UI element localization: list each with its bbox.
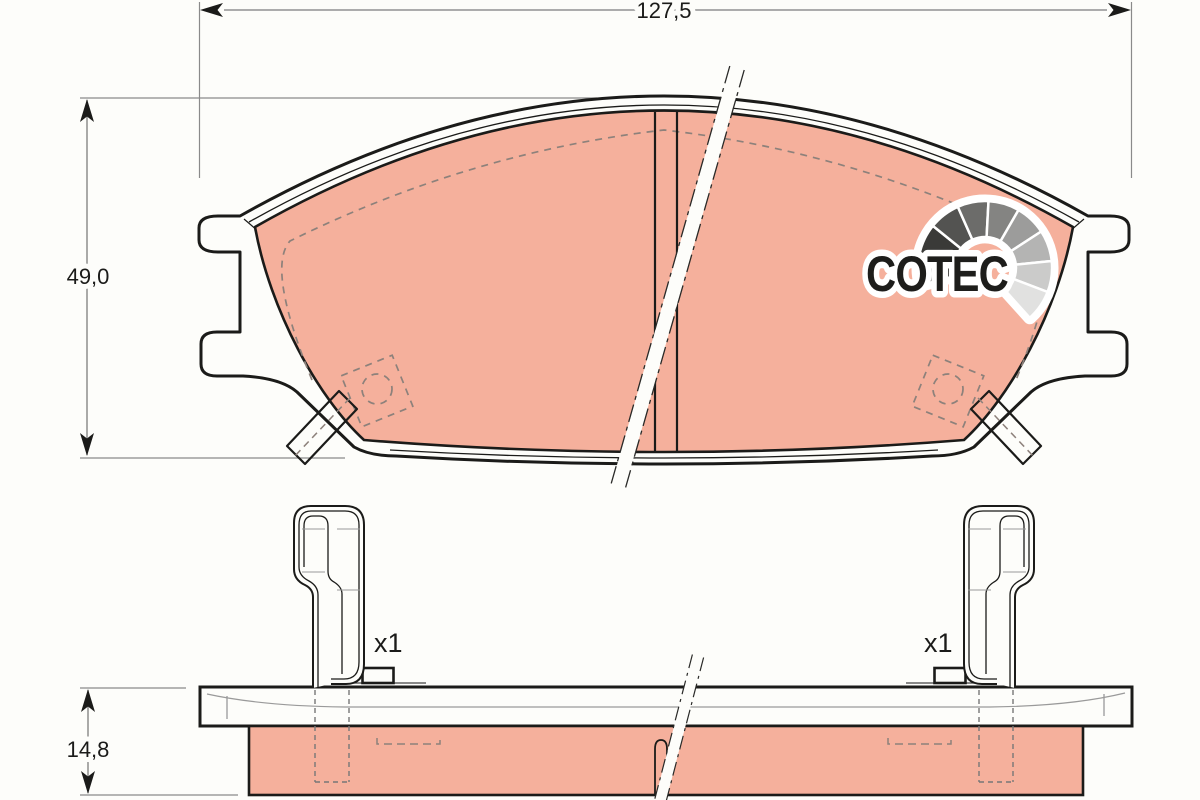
logo-wordmark: COTEC xyxy=(866,246,1008,302)
arrowhead xyxy=(200,3,223,17)
left-spring-clip xyxy=(294,506,364,688)
tab-centerline-dashed xyxy=(978,398,1035,458)
left-shim-tab xyxy=(363,668,394,683)
right-shim-tab xyxy=(935,668,966,683)
right-spring-clip xyxy=(964,506,1034,688)
right-clip-qty-label: x1 xyxy=(924,628,953,658)
dim-thickness-label: 14,8 xyxy=(67,737,110,762)
arrowhead xyxy=(1108,3,1131,17)
brake-pad-technical-drawing: 127,5 49,0 14,8 xyxy=(0,0,1200,800)
left-clip-qty-label: x1 xyxy=(374,628,403,658)
tab-centerline-dashed xyxy=(293,398,350,458)
side-view: x1 x1 xyxy=(200,506,1132,795)
left-angled-tab xyxy=(287,391,357,464)
dim-width-label: 127,5 xyxy=(636,0,691,23)
drawing-canvas: 127,5 49,0 14,8 xyxy=(0,0,1200,800)
dim-height-label: 49,0 xyxy=(67,264,110,289)
right-angled-tab xyxy=(971,391,1041,464)
